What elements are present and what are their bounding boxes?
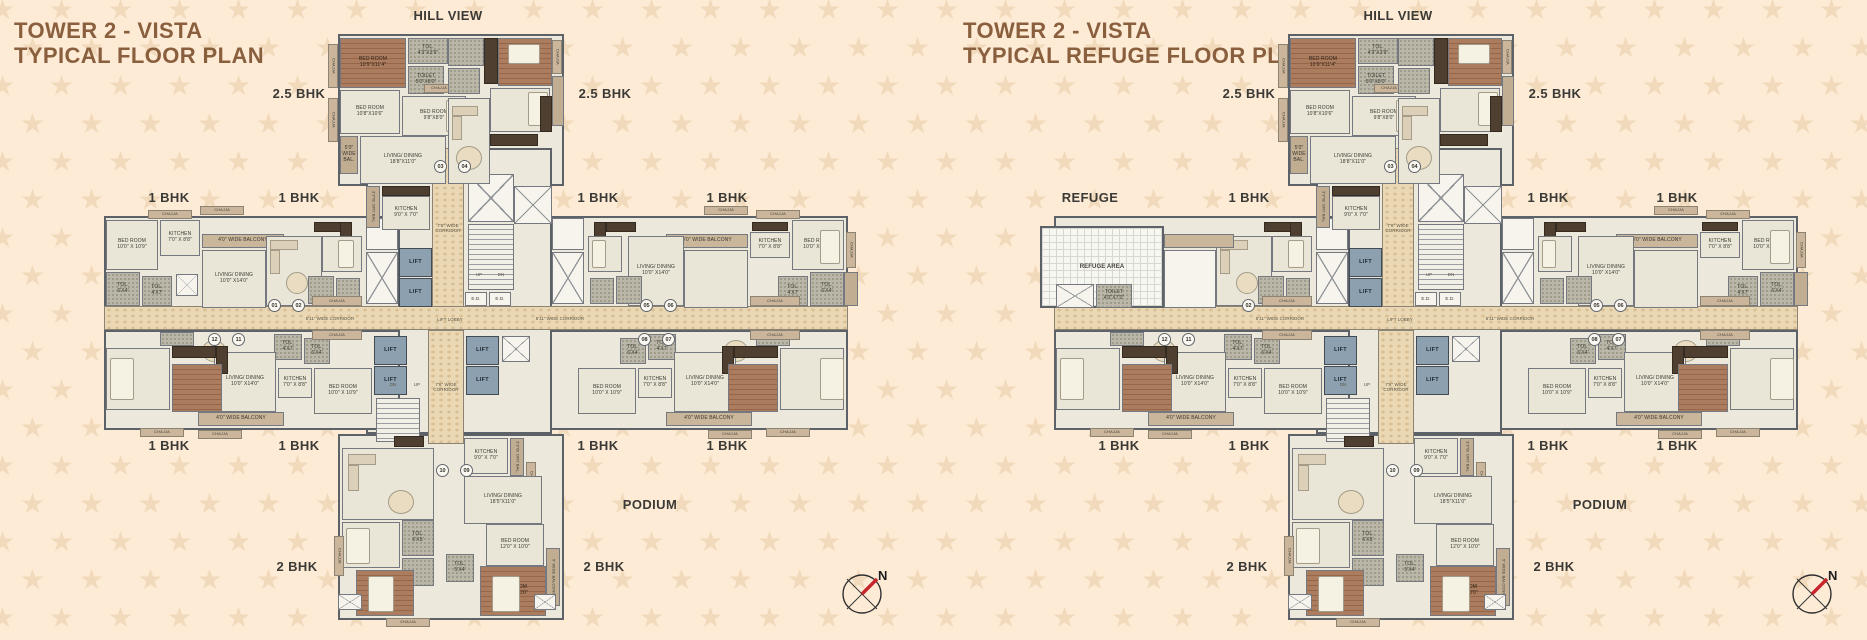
room-bed12w	[172, 364, 222, 412]
unit-number-02: 02	[292, 299, 305, 312]
star-icon: ★	[20, 262, 45, 290]
room-toi03: TOL. 4'3"X3'9"	[408, 38, 448, 64]
room-bedf04a	[508, 44, 540, 64]
room-chjc2: CHAJJA	[1700, 296, 1750, 306]
room-label: LIVING/ DINING 10'0" X14'0"	[226, 376, 264, 388]
room-kit06dark	[1702, 222, 1738, 231]
room-label: CHAJJA	[1279, 333, 1295, 338]
room-label: KITCHEN 7'0" X 8'8"	[283, 377, 307, 389]
room-ref_toilet: TOILET 4'0"X7'0"	[1096, 284, 1132, 308]
room-label: E.D.	[1421, 296, 1430, 301]
room-chjs01b: CHAJJA	[200, 206, 244, 215]
room-label: TOL. 4'X7'	[1232, 341, 1243, 353]
room-label: LIVING/ DINING 10'0" X14'0"	[1587, 265, 1625, 277]
room-sofa02b	[1220, 250, 1230, 274]
room-label: 7'6" WIDE CORRIDOR	[433, 382, 458, 392]
room-label: TOL. 4'3"X3'9"	[418, 45, 439, 57]
room-bath04b	[1398, 68, 1430, 94]
room-bal08: 4'0" WIDE BALCONY	[666, 412, 752, 426]
star-icon: ★	[0, 376, 15, 404]
room-tolc1: TOL. 6'X5'	[402, 520, 434, 556]
plan-text-txt_lobby: LIFT LOBBY	[1370, 310, 1430, 328]
room-label: BED ROOM 10'0" X 10'9"	[328, 385, 358, 397]
room-label: LIVING/ DINING 18'8"X11'0"	[384, 154, 422, 166]
star-icon: ★	[875, 376, 900, 404]
star-icon: ★	[875, 0, 900, 24]
unit-number-11: 11	[232, 333, 245, 346]
room-label: BED ROOM 10'9"X11'4"	[359, 57, 387, 69]
star-icon: ★	[993, 148, 1018, 176]
room-label: BED ROOM 10'8"X10'6"	[356, 106, 384, 118]
zone-label-2-bhk: 2 BHK	[1187, 559, 1307, 574]
room-tol01b: TOL. 4'X7'	[142, 276, 172, 306]
room-balr04	[1502, 76, 1514, 126]
zone-label-1-bhk: 1 BHK	[667, 438, 787, 453]
plan-text-txt_up1: UP	[1420, 270, 1438, 279]
zone-label-1-bhk: 1 BHK	[1617, 190, 1737, 205]
room-label: TOL. 6'X4'	[821, 283, 832, 295]
zone-label-2-bhk: 2 BHK	[237, 559, 357, 574]
room-label: 3'3"W. DRY BAL.	[1321, 191, 1326, 223]
star-icon: ★	[1849, 186, 1867, 214]
star-icon: ★	[934, 452, 959, 480]
room-kit12dark	[172, 346, 216, 358]
room-vcorr_bot: 7'6" WIDE CORRIDOR	[428, 330, 464, 444]
star-icon: ★	[1819, 0, 1844, 24]
room-tol01a: TOL. 6'X4'	[106, 272, 140, 306]
room-sofa02b	[270, 250, 280, 274]
room-label: BED ROOM 9'8"X8'0"	[1370, 110, 1398, 122]
room-label: CHAJJA	[1281, 58, 1286, 74]
room-label: BED ROOM 10'9"X11'4"	[1309, 57, 1337, 69]
room-label: 7'6" WIDE CORRIDOR	[1385, 223, 1410, 233]
star-icon: ★	[49, 376, 74, 404]
star-icon: ★	[964, 338, 989, 366]
unit-number-08: 08	[638, 333, 651, 346]
room-bedf10w	[1318, 576, 1344, 612]
unit-number-11: 11	[1182, 333, 1195, 346]
star-icon: ★	[993, 604, 1018, 632]
floor-plan-typical: HILL VIEW7'6" WIDE CORRIDOR7'6" WIDE COR…	[90, 20, 860, 630]
room-label: LIFT	[476, 377, 489, 383]
room-label: LIFT	[1359, 259, 1372, 265]
room-sofa04a	[1402, 106, 1428, 116]
star-icon: ★	[993, 300, 1018, 328]
room-living01: LIVING/ DINING 10'0" X14'0"	[202, 250, 266, 308]
room-label: KITCHEN 7'0" X 8'8"	[1593, 377, 1617, 389]
room-label: CHAJJA	[214, 208, 230, 213]
room-label: KITCHEN 7'0" X 8'8"	[168, 232, 192, 244]
room-kit03dark	[382, 186, 430, 196]
room-label: CHAJJA	[212, 432, 228, 437]
room-bath04a	[448, 38, 484, 66]
zone-label-1-bhk: 1 BHK	[1617, 438, 1737, 453]
star-icon: ★	[905, 414, 930, 442]
room-bedf05	[1542, 240, 1556, 268]
room-chjv06: CHAJJA	[1796, 232, 1806, 268]
star-icon: ★	[1819, 224, 1844, 252]
star-icon: ★	[905, 186, 930, 214]
room-label: KITCHEN 9'0" X 7'0"	[394, 207, 418, 219]
room-table02	[286, 272, 308, 294]
room-label: CHAJJA	[431, 86, 447, 91]
star-icon: ★	[905, 566, 930, 594]
room-kit07: KITCHEN 7'0" X 8'8"	[1588, 368, 1622, 398]
room-label: E.D.	[1445, 296, 1454, 301]
room-bath04b	[448, 68, 480, 94]
star-icon: ★	[875, 528, 900, 556]
room-tol06a: TOL. 6'X4'	[810, 272, 844, 306]
room-drybal03: 3'3"W. DRY BAL.	[366, 186, 380, 228]
room-chjv2: CHAJJA	[328, 98, 338, 142]
zone-label-1-bhk: 1 BHK	[109, 190, 229, 205]
room-tol11a: TOL. 4'X7'	[1224, 334, 1252, 360]
star-icon: ★	[0, 528, 15, 556]
star-icon: ★	[49, 604, 74, 632]
room-sofa02a	[270, 240, 298, 250]
zone-label-2-5-bhk: 2.5 BHK	[1189, 86, 1309, 101]
room-chjs_bot: CHAJJA	[386, 618, 430, 627]
star-icon: ★	[964, 490, 989, 518]
room-label: KITCHEN 7'0" X 8'8"	[1233, 377, 1257, 389]
room-bedf09w	[1442, 576, 1470, 612]
room-bal03: 5'0" WIDE BAL.	[1290, 136, 1308, 174]
star-icon: ★	[0, 224, 15, 252]
room-label: BED ROOM 10'0" X 10'9"	[117, 239, 147, 251]
plan-text-txt_corrL: 5'11" WIDE CORRIDOR	[1200, 309, 1360, 327]
star-icon: ★	[934, 528, 959, 556]
room-bal12: 4'0" WIDE BALCONY	[1148, 412, 1234, 426]
room-label: CHAJJA	[1162, 432, 1178, 437]
room-liftA1: LIFT	[399, 248, 432, 277]
room-living06	[1634, 250, 1698, 308]
star-icon: ★	[1819, 72, 1844, 100]
room-label: CHAJJA	[331, 58, 336, 74]
room-ref_hall	[1164, 250, 1216, 308]
room-kit03: KITCHEN 9'0" X 7'0"	[382, 196, 430, 230]
zone-label-2-5-bhk: 2.5 BHK	[1495, 86, 1615, 101]
room-label: LIFT	[1359, 289, 1372, 295]
room-bedf05	[592, 240, 606, 268]
zone-label-1-bhk: 1 BHK	[239, 190, 359, 205]
room-tol11a: TOL. 4'X7'	[274, 334, 302, 360]
room-table10	[1338, 490, 1364, 514]
room-label: KITCHEN 9'0" X 7'0"	[1424, 450, 1448, 462]
room-balr06	[1794, 272, 1808, 306]
room-living06	[684, 250, 748, 308]
zone-label-2-bhk: 2 BHK	[1494, 559, 1614, 574]
zone-label-podium: PODIUM	[1540, 497, 1660, 512]
star-icon: ★	[0, 0, 15, 24]
room-tolc1: TOL. 6'X5'	[1352, 520, 1384, 556]
room-liftB1: LIFT	[1324, 336, 1357, 365]
star-icon: ★	[20, 338, 45, 366]
room-living03: LIVING/ DINING 18'8"X11'0"	[1310, 136, 1396, 184]
star-icon: ★	[934, 148, 959, 176]
room-label: KITCHEN 9'0" X 7'0"	[474, 450, 498, 462]
room-label: TOL. 6'X4'	[1261, 345, 1272, 357]
star-icon: ★	[875, 452, 900, 480]
room-label: KITCHEN 7'0" X 8'8"	[643, 377, 667, 389]
room-label: LIVING/ DINING 10'0" X14'0"	[215, 273, 253, 285]
room-label: BED ROOM 12'0" X 10'0"	[500, 539, 530, 551]
room-label: CHAJJA	[331, 112, 336, 128]
star-icon: ★	[993, 224, 1018, 252]
room-table10	[388, 490, 414, 514]
unit-number-02: 02	[1242, 299, 1255, 312]
room-duct_cr2	[552, 252, 584, 304]
room-liftC2: LIFT	[466, 366, 499, 395]
room-bed12w	[1122, 364, 1172, 412]
room-label: CHAJJA	[1668, 208, 1684, 213]
room-label: TOL. 6'X4'	[117, 283, 128, 295]
room-label: LIVING/ DINING 18'8"X11'0"	[1334, 154, 1372, 166]
room-kit08dark	[734, 346, 778, 358]
star-icon: ★	[20, 566, 45, 594]
room-label: CHAJJA	[1279, 299, 1295, 304]
plan-text-txt_up1: UP	[470, 270, 488, 279]
zone-label-2-5-bhk: 2.5 BHK	[545, 86, 665, 101]
room-label: CHAJJA	[1717, 333, 1733, 338]
compass-icon: N	[1786, 564, 1842, 625]
plan-text-txt_dn2: DN	[1334, 380, 1352, 389]
room-chjv3: CHAJJA	[552, 40, 562, 74]
room-label: E.D.	[471, 296, 480, 301]
room-duct_cr	[1502, 218, 1534, 250]
room-duct_b1	[1288, 594, 1312, 610]
room-kit01: KITCHEN 7'0" X 8'8"	[160, 220, 200, 256]
room-label: 3'3"W. DRY BAL.	[371, 191, 376, 223]
room-label: 4'0" WIDE BALCONY	[1632, 238, 1682, 244]
room-tol09b: TOL. 5'X4'	[446, 554, 474, 582]
room-label: CHAJJA	[1720, 212, 1736, 217]
star-icon: ★	[20, 414, 45, 442]
zone-label-2-bhk: 2 BHK	[544, 559, 664, 574]
room-bal12: 4'0" WIDE BALCONY	[198, 412, 284, 426]
star-icon: ★	[934, 224, 959, 252]
room-bed03a: BED ROOM 10'9"X11'4"	[1290, 38, 1356, 88]
star-icon: ★	[875, 148, 900, 176]
room-bedf06	[1770, 230, 1790, 264]
room-label: TOL. 6'X4'	[1577, 345, 1588, 357]
room-label: BED ROOM 10'8"X10'6"	[1306, 106, 1334, 118]
room-stair1	[468, 224, 514, 290]
room-ed2: E.D.	[489, 292, 511, 306]
room-duct_cr	[552, 218, 584, 250]
unit-number-09: 09	[1410, 464, 1423, 477]
star-icon: ★	[964, 566, 989, 594]
room-label: 3'3"W. DRY BAL.	[1465, 441, 1470, 473]
star-icon: ★	[934, 376, 959, 404]
room-label: TOL. 6'X5'	[412, 532, 423, 544]
room-label: CHAJJA	[1717, 299, 1733, 304]
room-fr04	[1490, 96, 1502, 132]
star-icon: ★	[1819, 300, 1844, 328]
star-icon: ★	[993, 376, 1018, 404]
room-bath04a	[1398, 38, 1434, 66]
star-icon: ★	[1819, 376, 1844, 404]
star-icon: ★	[0, 604, 15, 632]
room-label: CHAJJA	[1381, 86, 1397, 91]
room-duct01	[176, 274, 198, 296]
room-label: CHAJJA	[1104, 430, 1120, 435]
room-bedf08	[820, 358, 844, 400]
room-label: TOL. 5'X4'	[1404, 562, 1415, 574]
zone-label-1-bhk: 1 BHK	[1488, 190, 1608, 205]
room-duct_cl2	[366, 252, 398, 304]
room-label: CHAJJA	[1799, 242, 1804, 258]
star-icon: ★	[0, 300, 15, 328]
room-label: TOL. 4'X7'	[151, 285, 162, 297]
zone-label-2-5-bhk: 2.5 BHK	[239, 86, 359, 101]
room-bed03a: BED ROOM 10'9"X11'4"	[340, 38, 406, 88]
room-drybal09: 3'3"W. DRY BAL.	[510, 438, 524, 476]
room-label: LIFT	[384, 347, 397, 353]
star-icon: ★	[49, 528, 74, 556]
unit-number-03: 03	[434, 160, 447, 173]
room-drybal03: 3'3"W. DRY BAL.	[1316, 186, 1330, 228]
room-drybal09: 3'3"W. DRY BAL.	[1460, 438, 1474, 476]
star-icon: ★	[20, 110, 45, 138]
room-label: LIFT	[409, 259, 422, 265]
star-icon: ★	[1819, 452, 1844, 480]
room-label: CHAJJA	[1505, 49, 1510, 65]
plan-text-txt_dn2: DN	[384, 380, 402, 389]
room-label: LIFT	[1426, 347, 1439, 353]
room-chjv1: CHAJJA	[328, 44, 338, 88]
room-bedf06	[820, 230, 840, 264]
star-icon: ★	[934, 72, 959, 100]
star-icon: ★	[964, 262, 989, 290]
room-label: BED ROOM 10'0" X 10'9"	[1542, 385, 1572, 397]
room-duct_c3	[1452, 336, 1480, 362]
room-balr06	[844, 272, 858, 306]
room-label: 7'6" WIDE CORRIDOR	[1383, 382, 1408, 392]
room-label: BED ROOM 9'8"X8'0"	[420, 110, 448, 122]
room-label: CHAJJA	[767, 299, 783, 304]
room-bedf04a	[1458, 44, 1490, 64]
room-kit07: KITCHEN 7'0" X 8'8"	[638, 368, 672, 398]
room-chjv2: CHAJJA	[1278, 98, 1288, 142]
room-tol09b: TOL. 5'X4'	[1396, 554, 1424, 582]
room-kit04dark	[1440, 134, 1488, 146]
room-label: 4'0" WIDE BALCONY	[1166, 416, 1216, 422]
room-bedf12	[110, 358, 134, 400]
room-label: KITCHEN 7'0" X 8'8"	[758, 239, 782, 251]
plan-text-txt_corrR: 5'11" WIDE CORRIDOR	[1440, 309, 1580, 327]
room-stair1	[1418, 224, 1464, 290]
room-ed1: E.D.	[1415, 292, 1437, 306]
room-kit11: KITCHEN 7'0" X 8'8"	[278, 368, 312, 398]
unit-number-05: 05	[640, 299, 653, 312]
room-tol11b: TOL. 6'X4'	[304, 338, 330, 364]
room-label: LIVING/ DINING 10'0" X14'0"	[686, 376, 724, 388]
room-tol05a	[1566, 276, 1592, 304]
room-label: TOL. 4'3"X3'9"	[1368, 45, 1389, 57]
star-icon: ★	[964, 414, 989, 442]
room-bal03: 5'0" WIDE BAL.	[340, 136, 358, 174]
plan-text-txt_up2: UP	[1358, 380, 1376, 389]
room-duct_b2	[534, 594, 556, 610]
room-label: CHAJJA	[1350, 620, 1366, 625]
room-label: TOL. 6'X5'	[1362, 532, 1373, 544]
room-living09: LIVING/ DINING 18'5"X11'0"	[1414, 476, 1492, 524]
star-icon: ★	[1819, 148, 1844, 176]
room-bed09a: BED ROOM 12'0" X 10'0"	[1436, 524, 1494, 566]
room-chjc1: CHAJJA	[312, 296, 362, 306]
room-tol05b	[590, 278, 614, 304]
room-bed09a: BED ROOM 12'0" X 10'0"	[486, 524, 544, 566]
room-duct_c3	[502, 336, 530, 362]
star-icon: ★	[0, 452, 15, 480]
room-balr04	[552, 76, 564, 126]
room-ward04	[1434, 38, 1448, 84]
room-bed08w	[1678, 364, 1728, 412]
room-chjs06a: CHAJJA	[756, 210, 800, 219]
room-toi03: TOL. 4'3"X3'9"	[1358, 38, 1398, 64]
unit-number-12: 12	[1158, 333, 1171, 346]
zone-label-1-bhk: 1 BHK	[1059, 438, 1179, 453]
room-label: BED ROOM 12'0" X 10'0"	[1450, 539, 1480, 551]
room-ref_duct	[1056, 284, 1094, 308]
star-icon: ★	[934, 300, 959, 328]
room-chjc2: CHAJJA	[750, 296, 800, 306]
room-liftA2: LIFT	[399, 278, 432, 307]
star-icon: ★	[1849, 262, 1867, 290]
star-icon: ★	[993, 72, 1018, 100]
star-icon: ★	[964, 110, 989, 138]
room-bedf02	[338, 240, 354, 268]
room-label: TOILET 4'0"X7'0"	[1104, 290, 1125, 302]
room-label: TOL. 4'X7'	[282, 341, 293, 353]
star-icon: ★	[1849, 414, 1867, 442]
room-label: CHAJJA	[1672, 432, 1688, 437]
star-icon: ★	[905, 338, 930, 366]
room-kit06: KITCHEN 7'0" X 8'8"	[750, 232, 790, 258]
star-icon: ★	[20, 490, 45, 518]
room-chjv1: CHAJJA	[1278, 44, 1288, 88]
unit-number-07: 07	[662, 333, 675, 346]
room-fr04	[540, 96, 552, 132]
room-label: 7'6" WIDE CORRIDOR	[435, 223, 460, 233]
room-chjc3: CHAJJA	[312, 330, 362, 340]
star-icon: ★	[875, 72, 900, 100]
floor-plan-refuge: HILL VIEW7'6" WIDE CORRIDOR7'6" WIDE COR…	[1040, 20, 1810, 630]
room-tol11b: TOL. 6'X4'	[1254, 338, 1280, 364]
room-label: LIVING/ DINING 10'0" X14'0"	[1636, 376, 1674, 388]
plan-text-txt_corrR: 5'11" WIDE CORRIDOR	[490, 309, 630, 327]
star-icon: ★	[49, 452, 74, 480]
room-label: CHAJJA	[329, 299, 345, 304]
room-chjs01a: CHAJJA	[148, 210, 192, 219]
room-label: 3'3"W. DRY BAL.	[515, 441, 520, 473]
star-icon: ★	[0, 72, 15, 100]
room-label: CHAJJA	[780, 430, 796, 435]
room-kit03dark	[1332, 186, 1380, 196]
room-ed2: E.D.	[1439, 292, 1461, 306]
plan-text-txt_dn1: DN	[1442, 270, 1460, 279]
plan-text-txt_dn1: DN	[492, 270, 510, 279]
room-label: BED ROOM 10'0" X 10'9"	[592, 385, 622, 397]
unit-number-03: 03	[1384, 160, 1397, 173]
star-icon: ★	[993, 528, 1018, 556]
room-duct_cr2	[1502, 252, 1534, 304]
room-chjs08a: CHAJJA	[1716, 428, 1760, 437]
room-label: LIVING/ DINING 18'5"X11'0"	[1434, 494, 1472, 506]
zone-label-1-bhk: 1 BHK	[1189, 190, 1309, 205]
zone-label-refuge: REFUGE	[1030, 190, 1150, 205]
zone-label-1-bhk: 1 BHK	[1189, 438, 1309, 453]
